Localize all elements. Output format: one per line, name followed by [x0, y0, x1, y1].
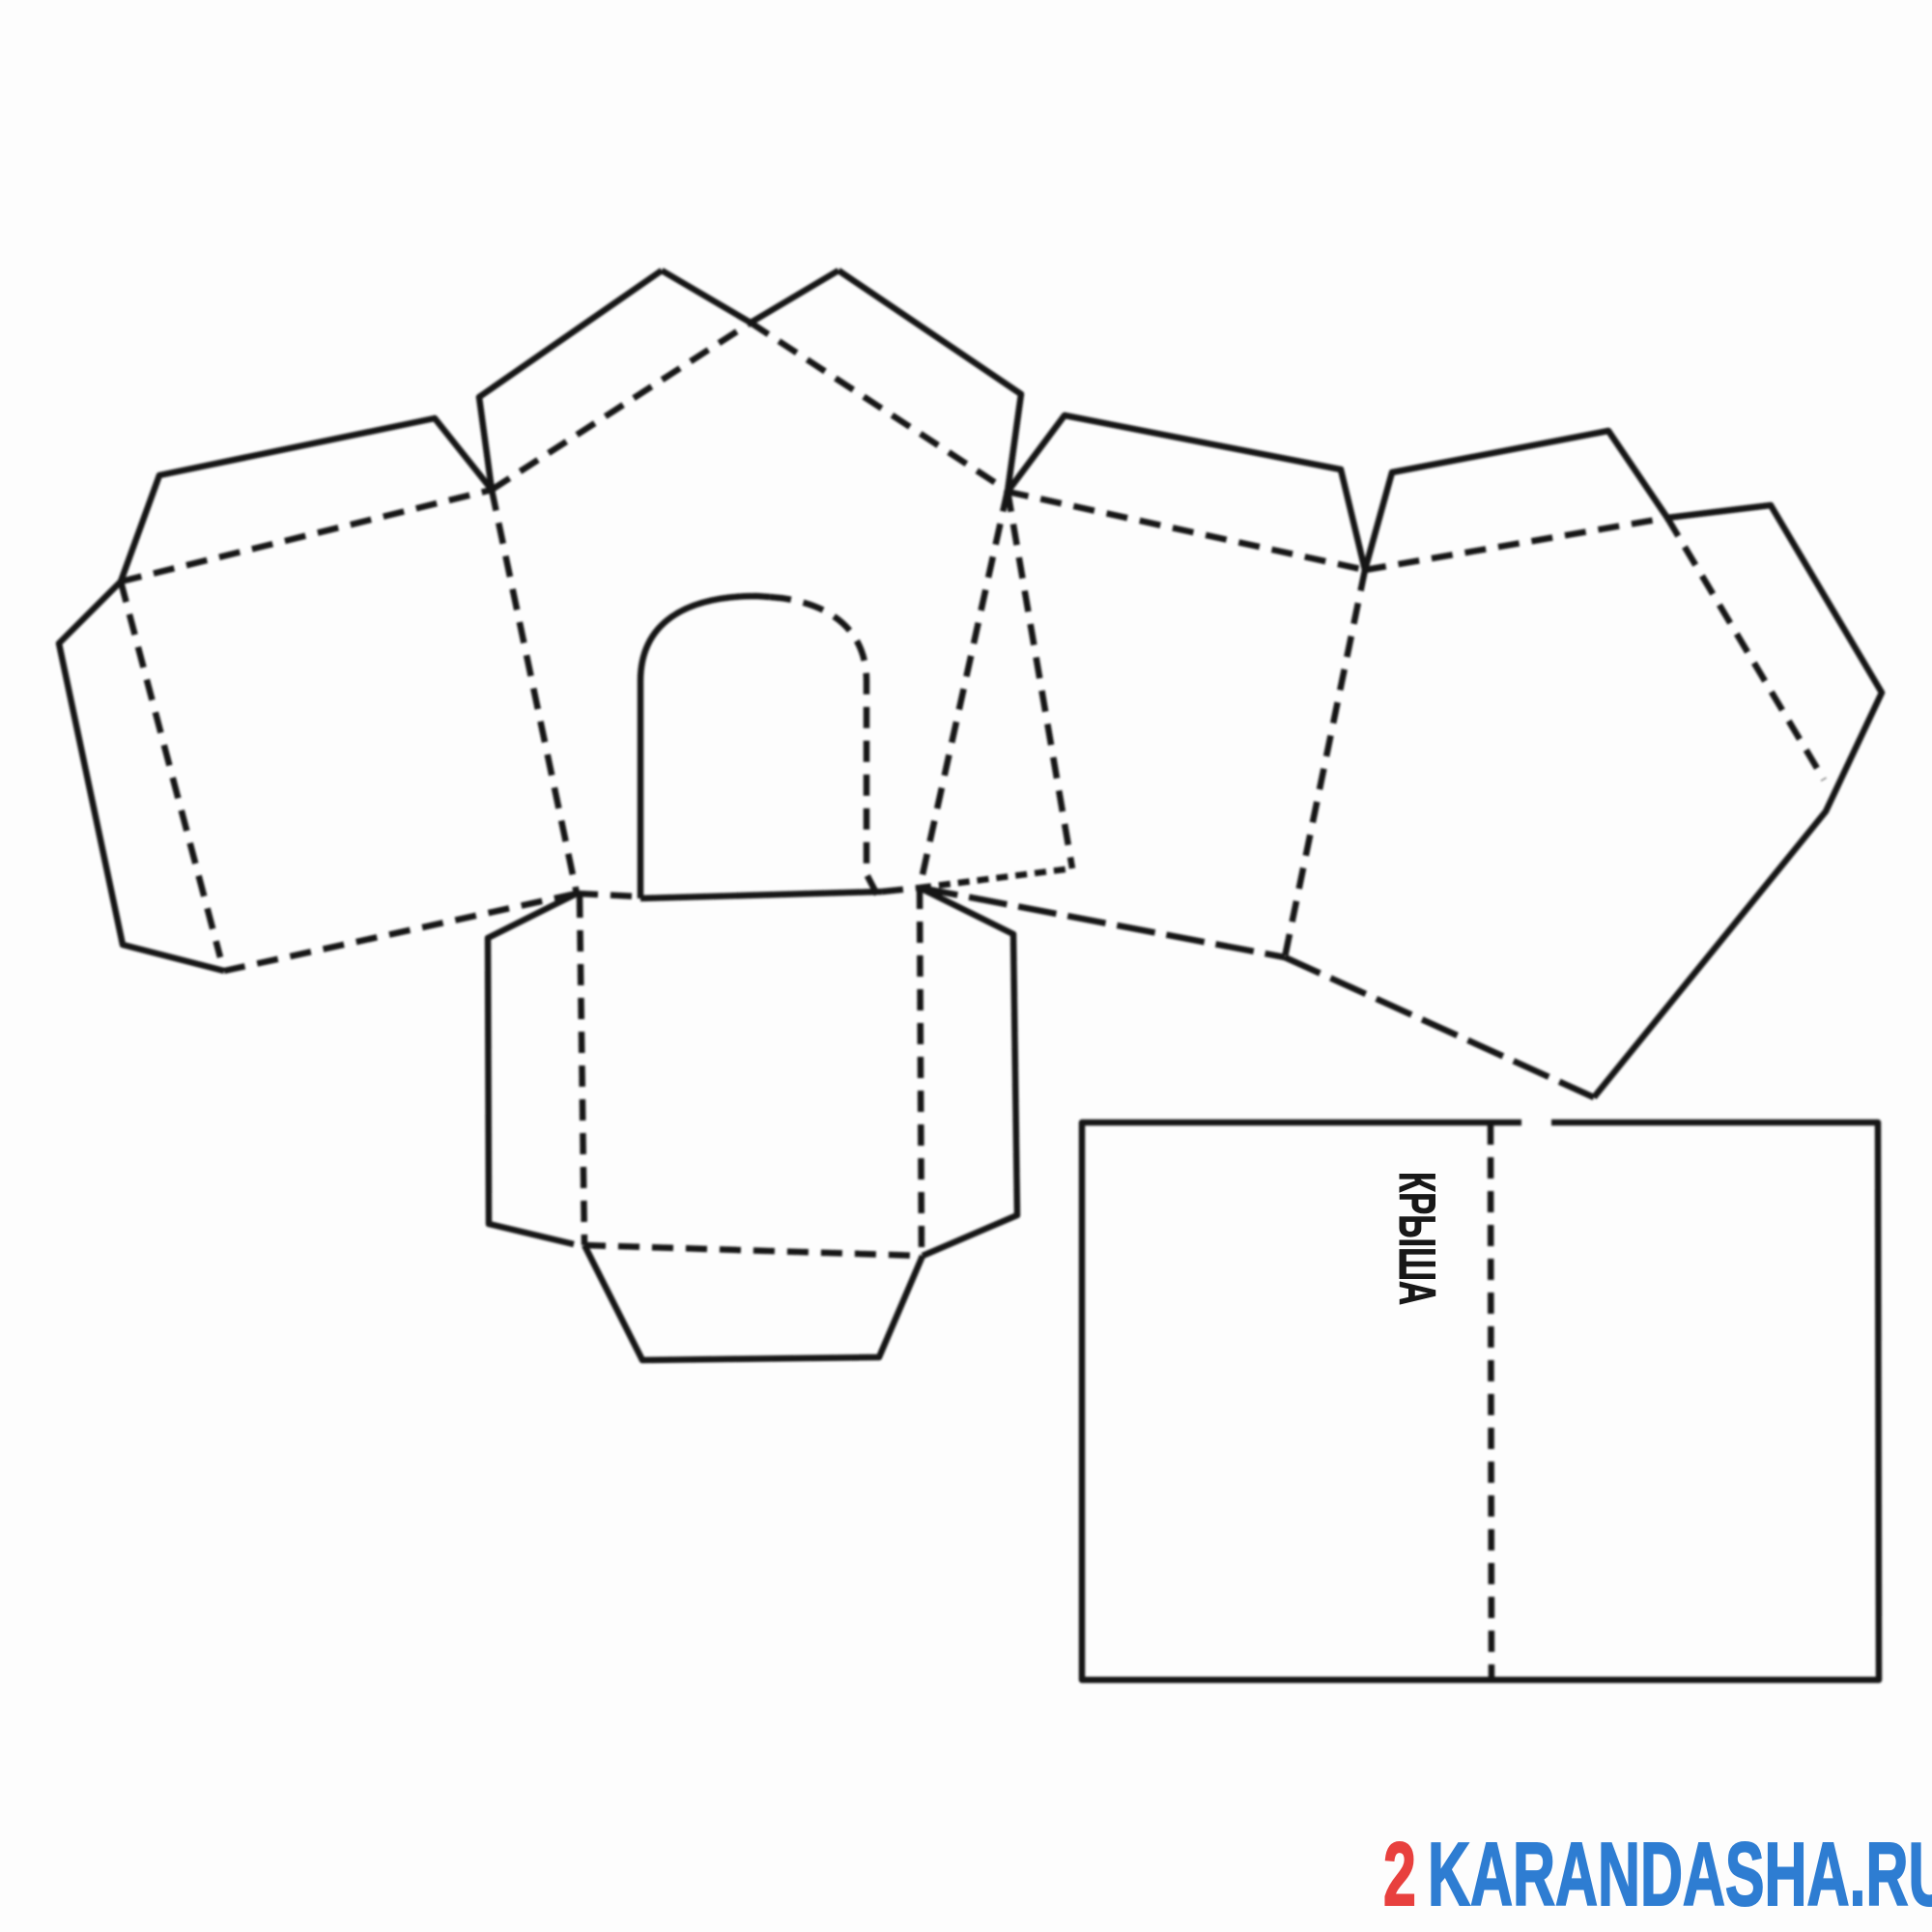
svg-text:KARANDASHA.RU: KARANDASHA.RU — [1428, 1824, 1932, 1924]
svg-text:КРЫША: КРЫША — [1388, 1172, 1445, 1305]
svg-text:2: 2 — [1383, 1824, 1416, 1924]
